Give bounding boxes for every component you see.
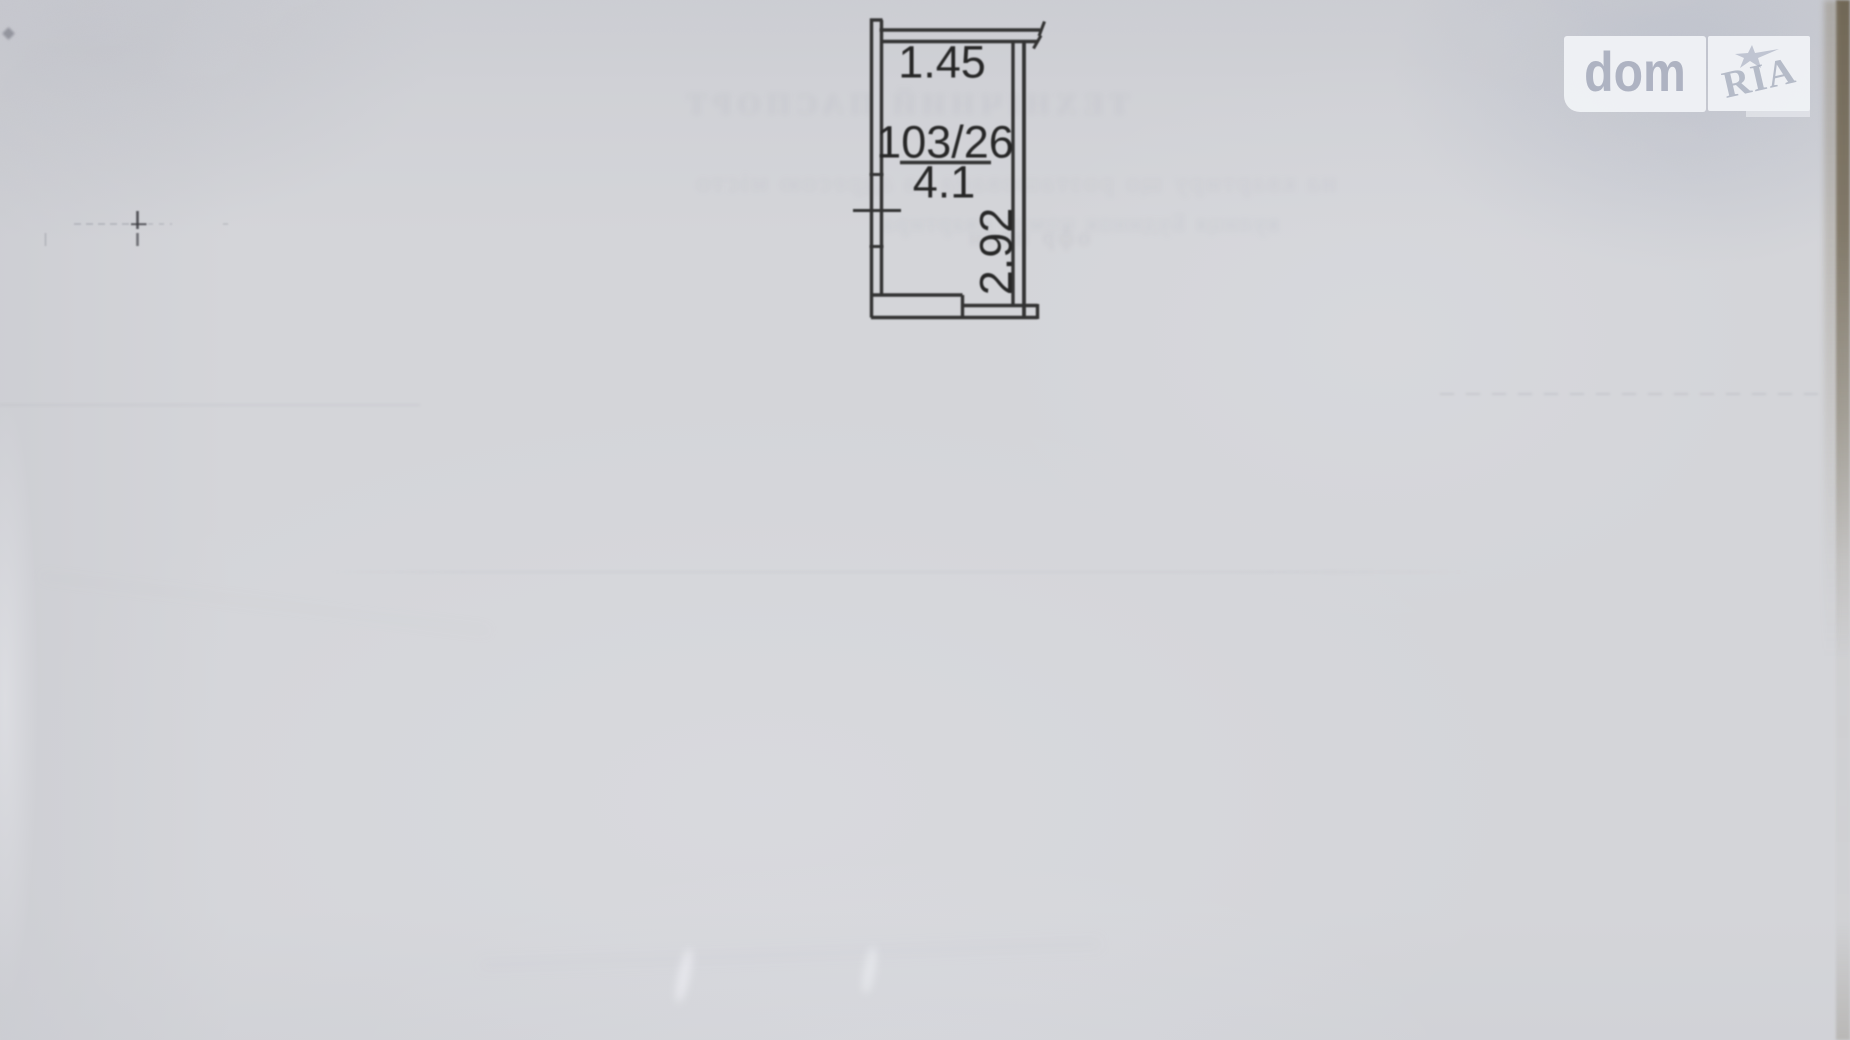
svg-text:2.92: 2.92 <box>971 208 1022 296</box>
svg-text:1.45: 1.45 <box>898 37 986 88</box>
svg-text:4.1: 4.1 <box>913 157 976 208</box>
